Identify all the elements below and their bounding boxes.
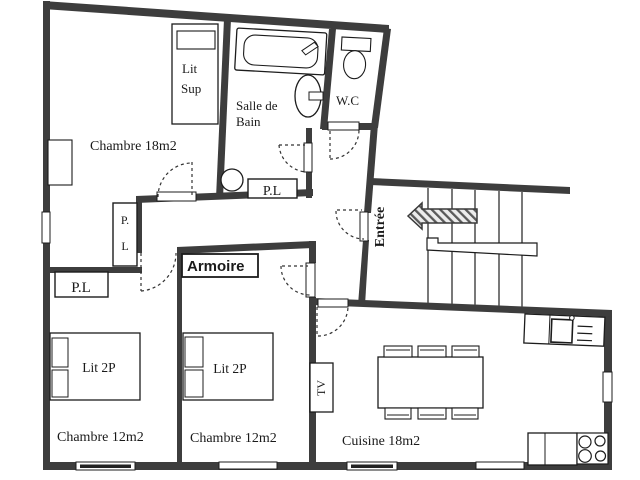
label-pl-bath: P.L	[263, 184, 281, 199]
door-kitchen-arc	[318, 307, 348, 336]
door-kitchen-leaf	[318, 299, 348, 307]
label-salle-de-bain-1: Salle de	[236, 98, 278, 113]
floor-plan-svg: Chambre 18m2 Lit Sup Salle de Bain W.C E…	[0, 0, 640, 480]
bathtub	[235, 28, 327, 75]
wall-left-lower	[43, 243, 50, 470]
double-bed-left-pillow-1	[52, 338, 68, 367]
window-left-wall	[42, 212, 50, 243]
label-entree: Entrée	[373, 207, 388, 247]
window-right-wall	[603, 372, 612, 402]
door-entrance-leaf	[360, 212, 368, 241]
water-heater	[221, 169, 243, 191]
window-bedroom-right	[219, 462, 277, 469]
label-armoire: Armoire	[187, 258, 245, 275]
label-chambre18: Chambre 18m2	[90, 139, 177, 154]
doors	[141, 122, 368, 336]
label-chambre12-right: Chambre 12m2	[190, 431, 277, 446]
entrance-arrow	[408, 203, 477, 229]
wall-bedroom-divider	[177, 250, 182, 466]
dining-table	[378, 357, 483, 408]
bathroom-sink-faucet	[309, 92, 323, 100]
stairwell	[408, 188, 537, 307]
wall-hall-south	[177, 241, 313, 254]
label-pl-hall-1: P.	[121, 213, 129, 227]
floor-plan: Chambre 18m2 Lit Sup Salle de Bain W.C E…	[0, 0, 640, 480]
wall-stair-top	[370, 178, 570, 194]
label-tv: TV	[314, 380, 328, 396]
double-bed-right-pillow-1	[185, 337, 203, 367]
stair-landing	[427, 238, 537, 256]
label-lit-sup-2: Sup	[181, 81, 201, 96]
single-bed-pillow	[177, 31, 215, 49]
wall-wc-right	[371, 28, 391, 128]
door-bath-leaf	[304, 143, 312, 172]
window-bedroom-left-pane	[80, 465, 131, 469]
label-pl-bedroom: P.L	[71, 280, 91, 296]
door-wc-leaf	[328, 122, 359, 130]
double-bed-right-pillow-2	[185, 370, 203, 397]
door-wc-arc	[330, 130, 359, 159]
label-pl-hall-2: L	[121, 239, 128, 253]
wall-bath-east-a	[306, 128, 312, 144]
radiator	[48, 140, 72, 185]
wall-entree-lower	[358, 240, 369, 305]
label-lit-sup-1: Lit	[182, 61, 198, 76]
label-lit2p-right: Lit 2P	[213, 361, 246, 376]
kitchen-cabinet	[528, 433, 577, 465]
label-chambre12-left: Chambre 12m2	[57, 430, 144, 445]
kitchen-sink-counter	[524, 314, 605, 346]
label-wc: W.C	[336, 93, 359, 108]
window-kitchen-a-pane	[351, 465, 393, 469]
double-bed-left-pillow-2	[52, 370, 68, 397]
wall-kitchen-west-a	[309, 241, 316, 263]
stove	[577, 433, 608, 464]
wall-kitchen-top	[313, 298, 612, 317]
label-cuisine: Cuisine 18m2	[342, 434, 420, 449]
toilet	[340, 37, 371, 79]
label-salle-de-bain-2: Bain	[236, 114, 261, 129]
label-lit2p-left: Lit 2P	[82, 360, 115, 375]
door-bedroom-right-leaf	[306, 263, 315, 297]
wall-entree-upper	[364, 124, 378, 213]
door-bedroom-left-arc	[141, 253, 176, 291]
door-chambre18-leaf	[157, 192, 196, 201]
window-kitchen-b	[476, 462, 524, 469]
